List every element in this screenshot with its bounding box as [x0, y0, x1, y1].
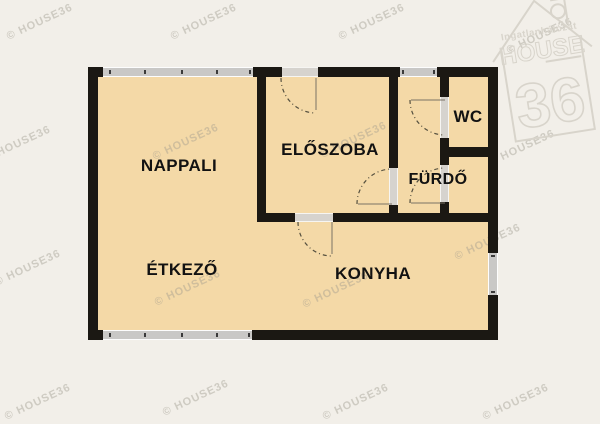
room-label-konyha: KONYHA	[335, 264, 411, 284]
room-label-etkezo: ÉTKEZŐ	[146, 260, 217, 280]
floorplan-image: © HOUSE36© HOUSE36© HOUSE36© HOUSE36© HO…	[0, 0, 600, 424]
door-swing-arc-konyha	[298, 222, 332, 256]
room-label-furdo: FÜRDŐ	[409, 171, 468, 189]
door-swing-arc-eloszoba	[357, 169, 392, 204]
room-label-eloszoba: ELŐSZOBA	[281, 140, 379, 160]
door-swing-arc-wc	[410, 100, 445, 135]
room-label-nappali: NAPPALI	[141, 156, 217, 176]
door-swing-arc-entrance	[281, 78, 316, 113]
door-swing-layer	[0, 0, 600, 424]
room-label-wc: WC	[453, 107, 482, 127]
